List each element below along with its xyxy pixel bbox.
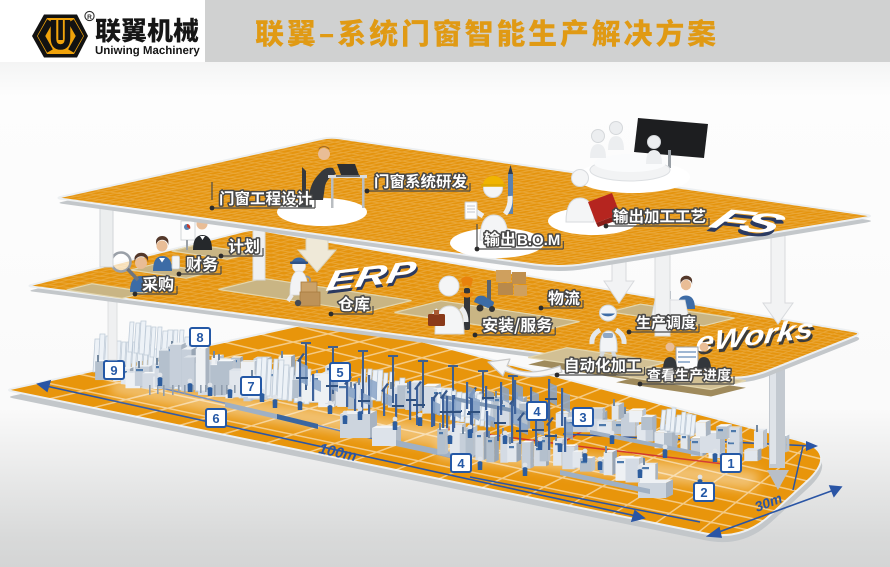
svg-text:3: 3 [579,410,586,425]
svg-text:4: 4 [533,404,541,419]
svg-text:2: 2 [700,485,707,500]
svg-text:5: 5 [336,365,343,380]
svg-text:R: R [87,14,92,21]
svg-text:4: 4 [457,456,465,471]
svg-text:8: 8 [196,330,203,345]
svg-text:7: 7 [247,379,254,394]
svg-text:6: 6 [212,411,219,426]
svg-text:1: 1 [727,456,734,471]
svg-text:9: 9 [110,363,117,378]
